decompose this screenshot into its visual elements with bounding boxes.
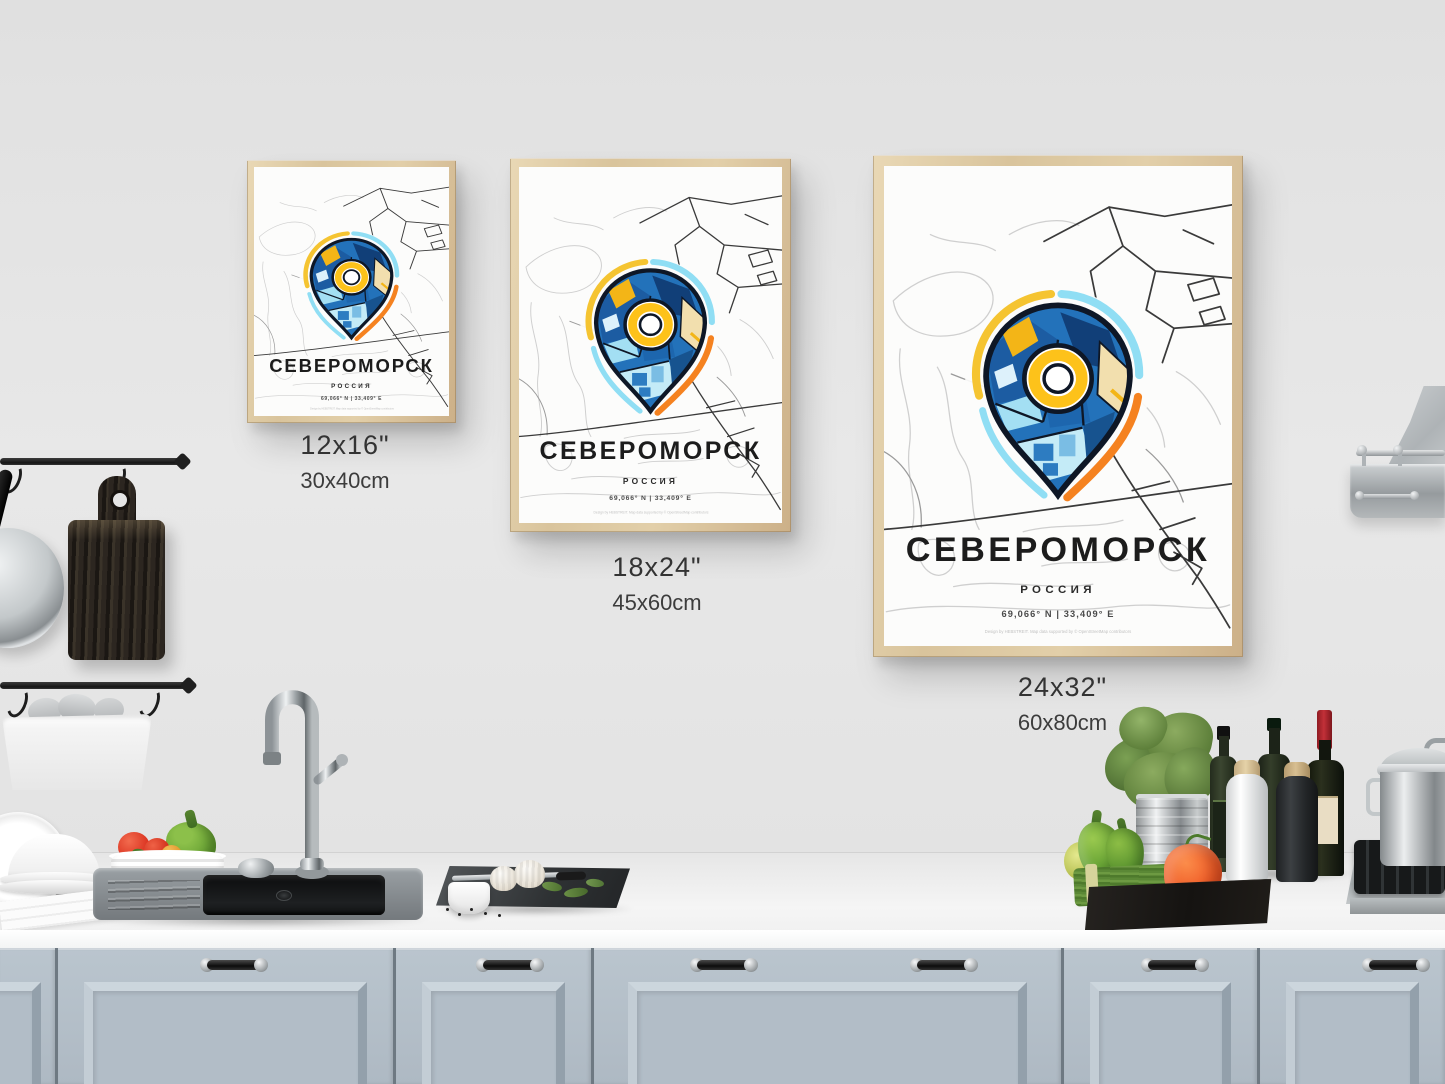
handle-cap bbox=[1195, 958, 1209, 972]
cabinet-row bbox=[0, 948, 1445, 1084]
cabinet-panel bbox=[0, 982, 41, 1084]
poster-frame-small: СЕВЕРОМОРСК РОССИЯ 69,066° N | 33,409° E… bbox=[247, 160, 456, 423]
poster-coordinates: 69,066° N | 33,409° E bbox=[884, 610, 1232, 619]
handle-cap bbox=[744, 958, 758, 972]
map-artwork bbox=[254, 167, 449, 416]
knife-handle bbox=[556, 871, 586, 880]
cabinet-panel bbox=[1090, 982, 1231, 1084]
pepper-grain bbox=[498, 914, 501, 917]
handle-bar bbox=[1148, 960, 1202, 970]
poster-footer: Design by HEBSTREIT. Map data supported … bbox=[985, 630, 1131, 634]
garlic-bulb bbox=[490, 866, 517, 891]
pepper-grinder bbox=[1276, 776, 1318, 882]
cabinet-door bbox=[58, 948, 393, 1084]
poster-subtitle: РОССИЯ bbox=[884, 585, 1232, 596]
poster-title: СЕВЕРОМОРСК bbox=[519, 439, 782, 464]
rail-ball bbox=[1393, 445, 1403, 455]
size-label-medium: 18x24" 45x60cm bbox=[577, 552, 737, 616]
pepper-grain bbox=[446, 908, 449, 911]
faucet bbox=[250, 676, 360, 882]
utensil-basket bbox=[2, 714, 152, 790]
range-hood-band bbox=[1350, 464, 1445, 518]
range-hood-rail-lower bbox=[1360, 494, 1414, 499]
handle-cap bbox=[1416, 958, 1430, 972]
poster-subtitle: РОССИЯ bbox=[254, 384, 449, 390]
cabinet-door bbox=[396, 948, 591, 1084]
cabinet-panel bbox=[628, 982, 1027, 1084]
salt-grinder bbox=[1226, 774, 1268, 882]
size-inches: 18x24" bbox=[577, 552, 737, 583]
cabinet-handle bbox=[910, 958, 978, 972]
stock-pot bbox=[1380, 772, 1445, 866]
serving-board bbox=[1083, 879, 1274, 932]
cabinet-drawer bbox=[594, 948, 1061, 1084]
size-label-small: 12x16" 30x40cm bbox=[265, 430, 425, 494]
handle-cap bbox=[964, 958, 978, 972]
handle-bar bbox=[697, 960, 751, 970]
cabinet-door bbox=[1064, 948, 1257, 1084]
pepper-grain bbox=[470, 908, 473, 911]
handle-bar bbox=[917, 960, 971, 970]
cabinet-handle bbox=[476, 958, 544, 972]
poster-title: СЕВЕРОМОРСК bbox=[884, 533, 1232, 567]
size-cm: 45x60cm bbox=[577, 590, 737, 616]
size-cm: 30x40cm bbox=[265, 468, 425, 494]
rail-ball bbox=[1410, 491, 1419, 500]
handle-cap bbox=[530, 958, 544, 972]
poster-title: СЕВЕРОМОРСК bbox=[254, 357, 449, 376]
sink-drain bbox=[276, 890, 292, 901]
rail-ball bbox=[1357, 445, 1367, 455]
cutting-board bbox=[68, 520, 165, 660]
poster-paper: СЕВЕРОМОРСК РОССИЯ 69,066° N | 33,409° E… bbox=[884, 166, 1232, 646]
pepper-grain bbox=[484, 912, 487, 915]
stove-front bbox=[1350, 898, 1445, 914]
poster-frame-large: СЕВЕРОМОРСК РОССИЯ 69,066° N | 33,409° E… bbox=[873, 155, 1243, 657]
cabinet-panel bbox=[1286, 982, 1419, 1084]
handle-bar bbox=[483, 960, 537, 970]
poster-coordinates: 69,066° N | 33,409° E bbox=[254, 397, 449, 402]
prep-bowl bbox=[448, 882, 490, 914]
cabinet-panel bbox=[84, 982, 367, 1084]
poster-paper: СЕВЕРОМОРСК РОССИЯ 69,066° N | 33,409° E… bbox=[519, 167, 782, 523]
cabinet-panel bbox=[422, 982, 565, 1084]
size-inches: 12x16" bbox=[265, 430, 425, 461]
poster-subtitle: РОССИЯ bbox=[519, 477, 782, 485]
cabinet-door bbox=[0, 948, 55, 1084]
handle-bar bbox=[207, 960, 261, 970]
size-inches: 24x32" bbox=[980, 672, 1145, 703]
cabinet-handle bbox=[200, 958, 268, 972]
wall-rail-lower bbox=[0, 682, 192, 689]
rail-ball bbox=[1355, 491, 1364, 500]
cutting-board-hole bbox=[110, 490, 130, 510]
handle-bar bbox=[1369, 960, 1423, 970]
map-artwork bbox=[884, 166, 1232, 646]
poster-coordinates: 69,066° N | 33,409° E bbox=[519, 496, 782, 503]
poster-frame-medium: СЕВЕРОМОРСК РОССИЯ 69,066° N | 33,409° E… bbox=[510, 158, 791, 532]
kitchen-scene: СЕВЕРОМОРСК РОССИЯ 69,066° N | 33,409° E… bbox=[0, 0, 1445, 1084]
counter-edge bbox=[0, 930, 1445, 949]
handle-cap bbox=[254, 958, 268, 972]
garlic-bulb bbox=[514, 860, 545, 888]
poster-footer: Design by HEBSTREIT. Map data supported … bbox=[593, 511, 708, 514]
poster-paper: СЕВЕРОМОРСК РОССИЯ 69,066° N | 33,409° E… bbox=[254, 167, 449, 416]
cabinet-handle bbox=[1362, 958, 1430, 972]
pepper-grain bbox=[458, 913, 461, 916]
drainboard-grooves bbox=[108, 880, 200, 910]
map-artwork bbox=[519, 167, 782, 523]
cabinet-handle bbox=[690, 958, 758, 972]
wall-rail-top bbox=[0, 458, 186, 465]
cabinet-handle bbox=[1141, 958, 1209, 972]
poster-footer: Design by HEBSTREIT. Map data supported … bbox=[310, 408, 394, 410]
cabinet-door bbox=[1260, 948, 1445, 1084]
